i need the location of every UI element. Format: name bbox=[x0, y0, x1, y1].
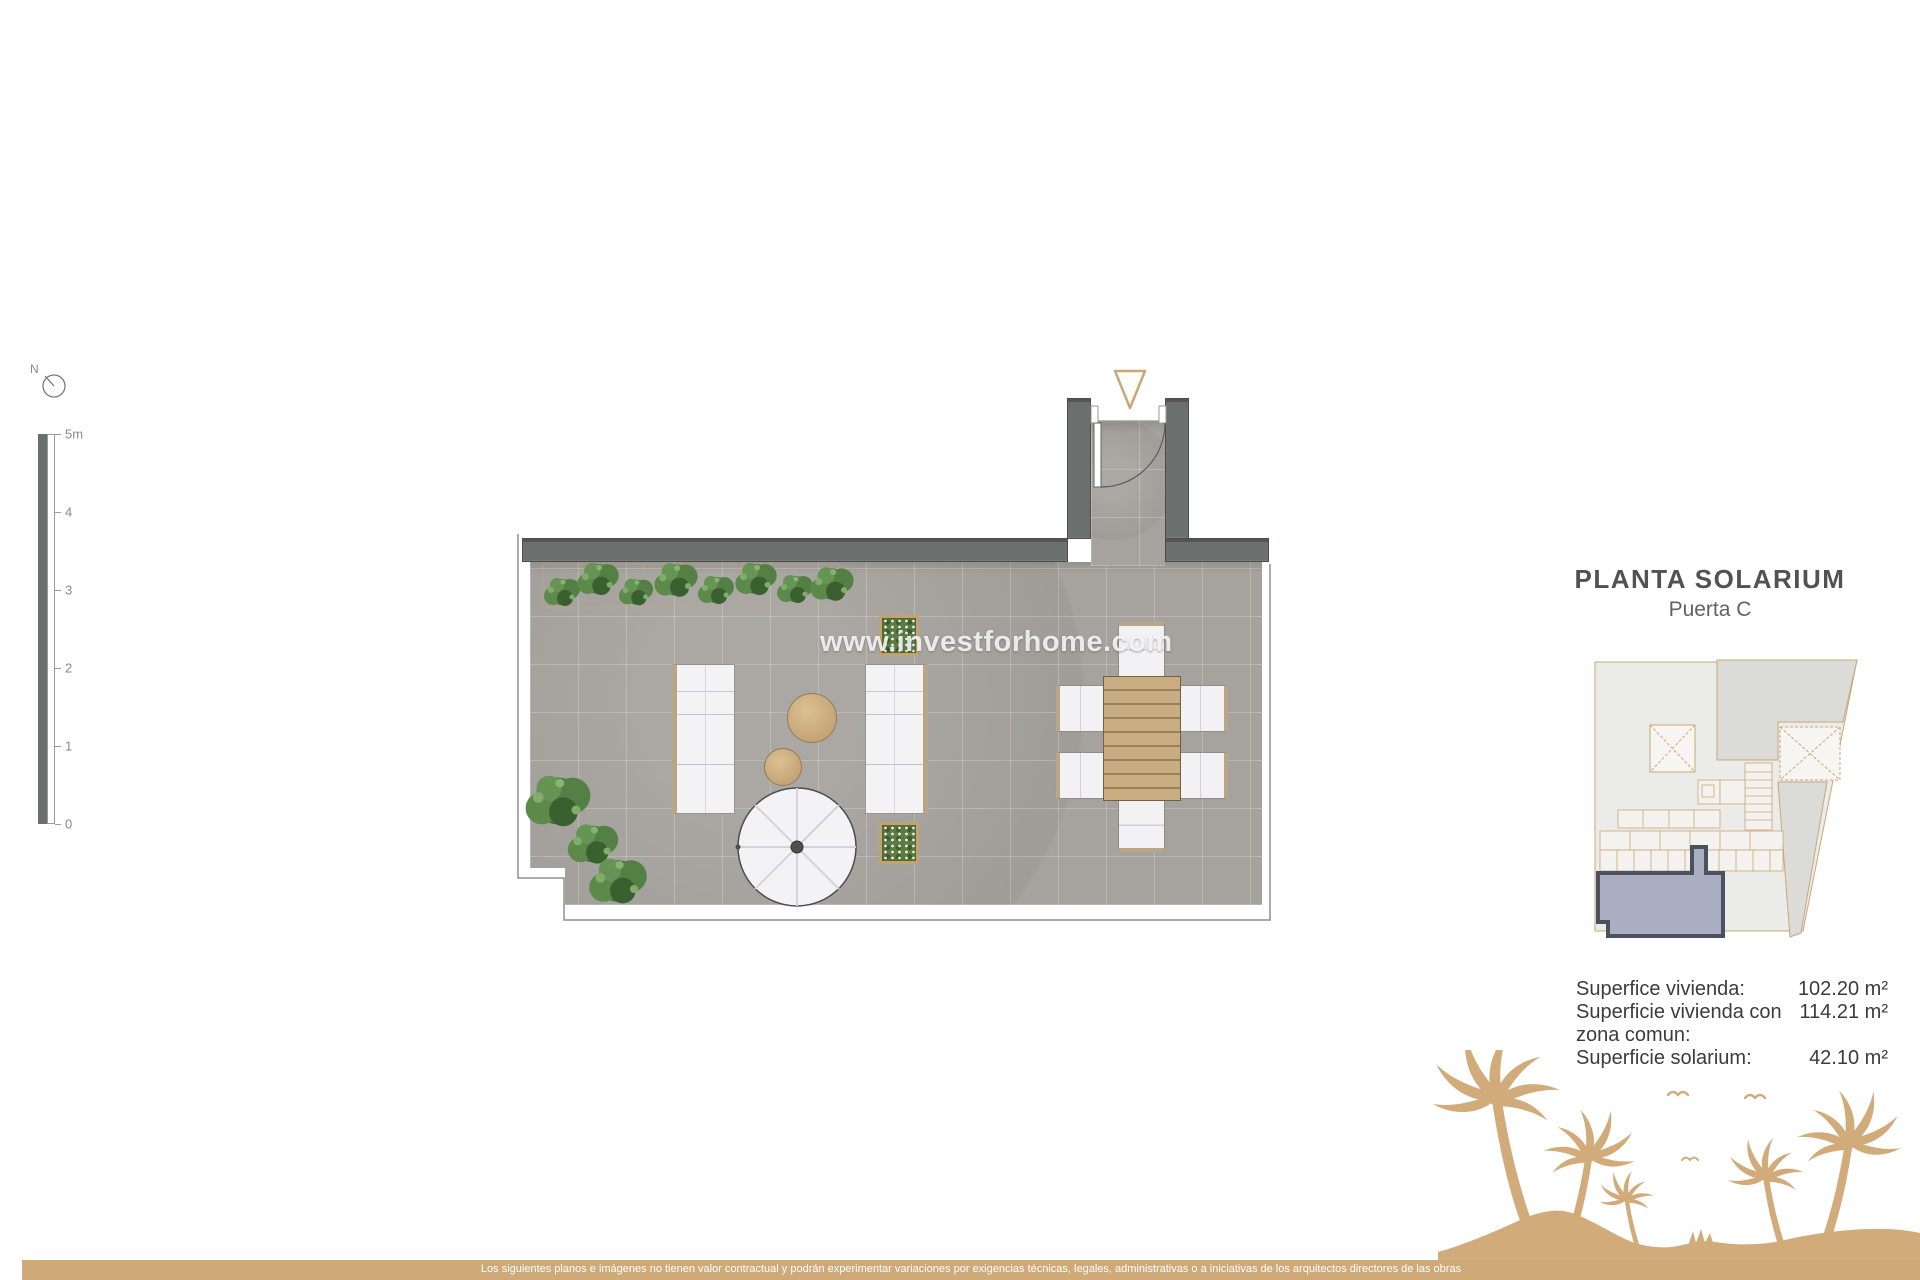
scale-label: 1 bbox=[65, 739, 72, 754]
area-summary: Superfice vivienda: 102.20 m² Superficie… bbox=[1576, 978, 1888, 1070]
scale-bar-ruler bbox=[47, 434, 55, 824]
disclaimer-text: Los siguientes planos e imágenes no tien… bbox=[22, 1260, 1920, 1279]
scale-tick bbox=[55, 512, 61, 513]
dining-chair bbox=[1056, 685, 1105, 732]
dining-table bbox=[1103, 676, 1181, 801]
wall bbox=[1165, 398, 1189, 539]
scale-bar: 5m 4 3 2 1 0 bbox=[38, 434, 98, 824]
dining-chair bbox=[1056, 752, 1105, 799]
sun-lounger bbox=[865, 664, 928, 814]
floor-plan-page: N 5m 4 3 2 1 0 bbox=[0, 0, 1920, 1280]
area-row: Superficie vivienda con zona comun: 114.… bbox=[1576, 1001, 1888, 1047]
grass-tuft bbox=[1688, 1229, 1714, 1246]
north-compass: N bbox=[24, 358, 76, 406]
flower-planter bbox=[879, 822, 919, 864]
area-row: Superfice vivienda: 102.20 m² bbox=[1576, 978, 1888, 1001]
wall bbox=[1067, 398, 1091, 539]
page-subtitle: Puerta C bbox=[1545, 598, 1875, 622]
area-label: Superficie solarium: bbox=[1576, 1047, 1808, 1070]
area-row: Superficie solarium: 42.10 m² bbox=[1576, 1047, 1888, 1070]
key-plan bbox=[1590, 650, 1900, 950]
scale-tick bbox=[55, 434, 61, 435]
scale-label: 4 bbox=[65, 505, 72, 520]
wall bbox=[1165, 538, 1269, 562]
palm-tree bbox=[1432, 1050, 1561, 1242]
area-label: Superfice vivienda: bbox=[1576, 978, 1798, 1001]
dining-chair bbox=[1179, 685, 1228, 732]
scale-bar-fill bbox=[38, 434, 47, 824]
dining-chair bbox=[1179, 752, 1228, 799]
scale-tick bbox=[55, 668, 61, 669]
entrance-arrow-icon bbox=[1115, 371, 1145, 408]
scale-tick bbox=[55, 824, 61, 825]
area-value: 102.20 m² bbox=[1798, 978, 1888, 1001]
entry-corridor-floor bbox=[1091, 421, 1165, 566]
page-title: PLANTA SOLARIUM bbox=[1545, 564, 1875, 595]
north-label: N bbox=[30, 362, 39, 376]
wall bbox=[522, 538, 1068, 562]
area-label: Superficie vivienda con zona comun: bbox=[1576, 1001, 1799, 1047]
bird-icon bbox=[1668, 1092, 1688, 1095]
bird-icon bbox=[1682, 1158, 1698, 1160]
bird-icon bbox=[1745, 1095, 1765, 1098]
scale-tick bbox=[55, 746, 61, 747]
scale-label: 5m bbox=[65, 427, 83, 442]
sun-lounger bbox=[672, 664, 735, 814]
footer-bar: Los siguientes planos e imágenes no tien… bbox=[22, 1260, 1920, 1280]
side-table bbox=[764, 748, 802, 786]
area-value: 42.10 m² bbox=[1808, 1047, 1888, 1070]
side-table bbox=[787, 693, 837, 743]
scale-label: 3 bbox=[65, 583, 72, 598]
scale-label: 2 bbox=[65, 661, 72, 676]
scale-tick bbox=[55, 590, 61, 591]
area-value: 114.21 m² bbox=[1799, 1001, 1888, 1024]
dining-chair bbox=[1118, 798, 1165, 852]
sand-dune bbox=[1438, 1211, 1920, 1260]
scale-label: 0 bbox=[65, 817, 72, 832]
watermark: www.investforhome.com bbox=[820, 626, 1173, 659]
beach-palms-illustration bbox=[1430, 1050, 1920, 1260]
